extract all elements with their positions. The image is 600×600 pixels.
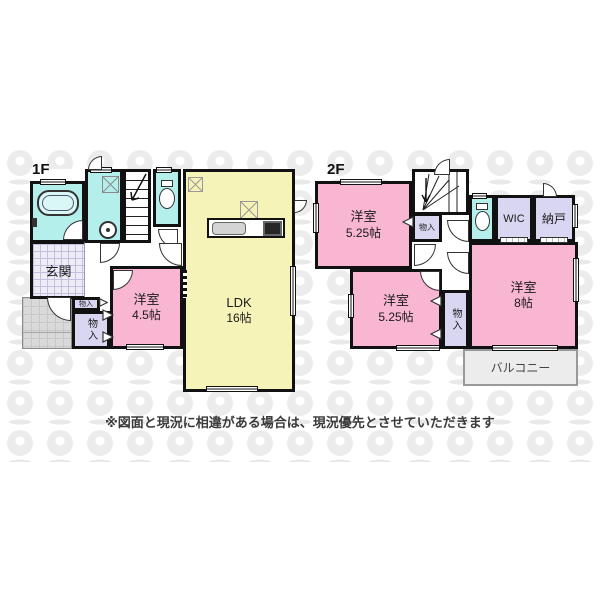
closet-door-chevron bbox=[99, 298, 108, 307]
floor2-label: 2F bbox=[327, 161, 345, 178]
room-yoshitsu-525a: 洋室 5.25帖 bbox=[315, 181, 412, 269]
room-size: 5.25帖 bbox=[378, 310, 413, 325]
stair-treads-fan bbox=[415, 172, 466, 212]
room-name: 洋室 bbox=[378, 293, 413, 309]
storage-label: 物入 bbox=[84, 318, 99, 342]
staircase-1f bbox=[123, 169, 151, 243]
closet-louver-door bbox=[500, 237, 528, 243]
window-balcony-door bbox=[492, 345, 558, 351]
room-size: 5.25帖 bbox=[346, 226, 381, 241]
kitchen-stove-icon bbox=[263, 221, 282, 236]
window bbox=[126, 344, 164, 350]
window bbox=[573, 258, 579, 302]
yoshitsu8-label: 洋室 8帖 bbox=[510, 280, 536, 311]
window bbox=[396, 345, 440, 351]
room-nando: 納戸 bbox=[533, 195, 575, 242]
closet-door-chevron bbox=[430, 328, 442, 340]
storage-label: 物入 bbox=[79, 299, 93, 309]
hatch-box-icon bbox=[188, 177, 203, 192]
bathtub-inner-line bbox=[42, 195, 74, 211]
floorplan-canvas: 1F 2F bbox=[0, 0, 600, 600]
yoshitsu45-label: 洋室 4.5帖 bbox=[132, 292, 161, 323]
room-toilet-1f bbox=[153, 169, 181, 227]
hatch-box-icon bbox=[102, 176, 119, 193]
room-name: 洋室 bbox=[132, 292, 161, 308]
room-name: 洋室 bbox=[510, 280, 536, 296]
closet-door-chevron bbox=[402, 216, 414, 228]
room-ldk: LDK 16帖 bbox=[183, 169, 295, 392]
yoshitsu525b-label: 洋室 5.25帖 bbox=[378, 293, 413, 324]
room-size: 8帖 bbox=[510, 296, 536, 311]
room-yoshitsu-8: 洋室 8帖 bbox=[469, 242, 578, 349]
room-washroom bbox=[85, 169, 123, 243]
nando-label: 納戸 bbox=[542, 210, 566, 227]
storage-label: 物入 bbox=[419, 222, 435, 233]
floor1-label: 1F bbox=[32, 161, 50, 178]
faucet-icon bbox=[32, 218, 37, 227]
genkan-label: 玄関 bbox=[45, 261, 71, 280]
ldk-label: LDK 16帖 bbox=[226, 295, 251, 326]
window bbox=[348, 294, 354, 318]
sliding-door-hatch bbox=[183, 270, 187, 298]
stair-direction-arrow bbox=[126, 172, 148, 206]
closet-door-chevron bbox=[102, 331, 114, 343]
room-size: 4.5帖 bbox=[132, 308, 161, 323]
storage-small-1f: 物入 bbox=[72, 297, 100, 311]
balcony-label: バルコニー bbox=[491, 359, 551, 376]
washbasin-icon bbox=[99, 221, 117, 239]
porch-step-line bbox=[23, 332, 71, 333]
kitchen-sink-icon bbox=[212, 222, 246, 235]
window bbox=[156, 167, 172, 173]
closet-door-chevron bbox=[102, 309, 114, 321]
window bbox=[206, 386, 258, 392]
yoshitsu525a-label: 洋室 5.25帖 bbox=[346, 209, 381, 240]
balcony: バルコニー bbox=[463, 349, 578, 386]
wic-label: WIC bbox=[503, 213, 524, 225]
window bbox=[313, 203, 319, 233]
toilet-tank-icon bbox=[476, 203, 488, 210]
window bbox=[472, 193, 487, 199]
room-name: LDK bbox=[226, 295, 251, 311]
bathtub-icon bbox=[37, 190, 79, 216]
storage-label: 物入 bbox=[448, 308, 463, 332]
closet-louver-door bbox=[540, 237, 568, 243]
toilet-bowl-icon bbox=[475, 211, 490, 231]
room-wic: WIC bbox=[495, 195, 533, 242]
disclaimer-text: ※図面と現況に相違がある場合は、現況優先とさせていただきます bbox=[0, 412, 600, 431]
window bbox=[572, 204, 578, 228]
storage-a-2f: 物入 bbox=[412, 213, 442, 242]
closet-door-chevron bbox=[430, 295, 442, 307]
staircase-2f bbox=[412, 169, 469, 215]
room-toilet-2f bbox=[469, 195, 495, 242]
window bbox=[40, 179, 66, 185]
window bbox=[290, 266, 296, 316]
toilet-tank-icon bbox=[161, 180, 173, 187]
hatch-box-icon bbox=[240, 201, 258, 219]
room-name: 洋室 bbox=[346, 209, 381, 225]
storage-b-2f: 物入 bbox=[442, 290, 469, 349]
toilet-bowl-icon bbox=[159, 188, 175, 209]
room-size: 16帖 bbox=[226, 311, 251, 326]
window bbox=[340, 179, 382, 185]
room-genkan: 玄関 bbox=[30, 241, 85, 299]
